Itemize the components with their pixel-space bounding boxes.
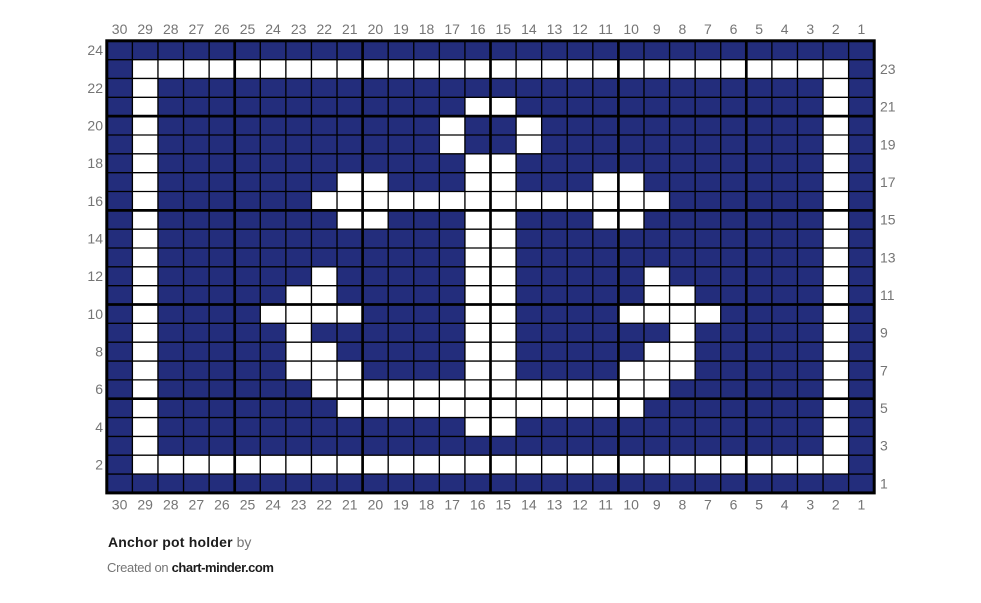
svg-text:1: 1 [858,497,866,513]
svg-text:12: 12 [572,21,588,37]
svg-text:8: 8 [678,21,686,37]
svg-text:30: 30 [112,497,128,513]
svg-text:3: 3 [806,497,814,513]
svg-text:24: 24 [265,21,281,37]
svg-text:28: 28 [163,497,179,513]
svg-text:4: 4 [781,21,789,37]
svg-text:13: 13 [880,249,896,265]
svg-text:14: 14 [521,497,537,513]
svg-text:21: 21 [342,21,358,37]
svg-text:15: 15 [496,21,512,37]
svg-text:29: 29 [137,497,153,513]
svg-text:20: 20 [87,117,103,133]
svg-text:14: 14 [521,21,537,37]
svg-text:3: 3 [880,438,888,454]
svg-text:12: 12 [572,497,588,513]
svg-text:6: 6 [730,497,738,513]
svg-text:13: 13 [547,497,563,513]
svg-text:5: 5 [755,21,763,37]
svg-text:10: 10 [87,306,103,322]
svg-text:1: 1 [880,475,888,491]
svg-text:1: 1 [858,21,866,37]
svg-text:21: 21 [880,99,896,115]
svg-text:22: 22 [316,497,332,513]
svg-text:10: 10 [623,21,639,37]
svg-text:Created on chart-minder.com: Created on chart-minder.com [107,560,274,575]
svg-text:28: 28 [163,21,179,37]
svg-text:22: 22 [316,21,332,37]
svg-text:26: 26 [214,497,230,513]
svg-text:17: 17 [880,174,896,190]
svg-text:19: 19 [393,21,409,37]
svg-text:26: 26 [214,21,230,37]
svg-text:3: 3 [806,21,814,37]
svg-text:7: 7 [704,497,712,513]
svg-text:10: 10 [623,497,639,513]
svg-text:6: 6 [730,21,738,37]
svg-text:15: 15 [880,212,896,228]
svg-text:9: 9 [653,21,661,37]
svg-text:2: 2 [95,457,103,473]
svg-text:11: 11 [598,21,613,37]
svg-text:2: 2 [832,497,840,513]
svg-text:7: 7 [880,362,888,378]
svg-text:4: 4 [781,497,789,513]
svg-text:17: 17 [444,21,460,37]
svg-text:13: 13 [547,21,563,37]
svg-text:8: 8 [95,344,103,360]
svg-text:29: 29 [137,21,153,37]
svg-text:9: 9 [653,497,661,513]
svg-text:22: 22 [87,80,103,96]
svg-text:11: 11 [880,287,895,303]
svg-text:18: 18 [87,155,103,171]
svg-text:27: 27 [189,497,205,513]
svg-text:18: 18 [419,497,435,513]
svg-text:7: 7 [704,21,712,37]
svg-text:11: 11 [598,497,613,513]
svg-text:30: 30 [112,21,128,37]
svg-text:4: 4 [95,419,103,435]
svg-text:27: 27 [189,21,205,37]
svg-text:2: 2 [832,21,840,37]
svg-text:16: 16 [470,21,486,37]
svg-text:23: 23 [291,497,307,513]
svg-text:25: 25 [240,497,256,513]
svg-text:20: 20 [368,21,384,37]
svg-text:12: 12 [87,268,103,284]
svg-text:25: 25 [240,21,256,37]
svg-text:5: 5 [880,400,888,416]
svg-text:19: 19 [880,136,896,152]
svg-text:16: 16 [470,497,486,513]
svg-text:20: 20 [368,497,384,513]
svg-text:8: 8 [678,497,686,513]
svg-text:21: 21 [342,497,358,513]
svg-text:23: 23 [880,61,896,77]
svg-text:24: 24 [87,42,103,58]
svg-text:17: 17 [444,497,460,513]
svg-text:9: 9 [880,325,888,341]
svg-text:19: 19 [393,497,409,513]
svg-text:15: 15 [496,497,512,513]
svg-text:24: 24 [265,497,281,513]
svg-text:5: 5 [755,497,763,513]
svg-text:14: 14 [87,230,103,246]
svg-text:18: 18 [419,21,435,37]
svg-text:Anchor pot holder by: Anchor pot holder by [108,534,251,550]
svg-text:16: 16 [87,193,103,209]
svg-text:6: 6 [95,381,103,397]
svg-text:23: 23 [291,21,307,37]
